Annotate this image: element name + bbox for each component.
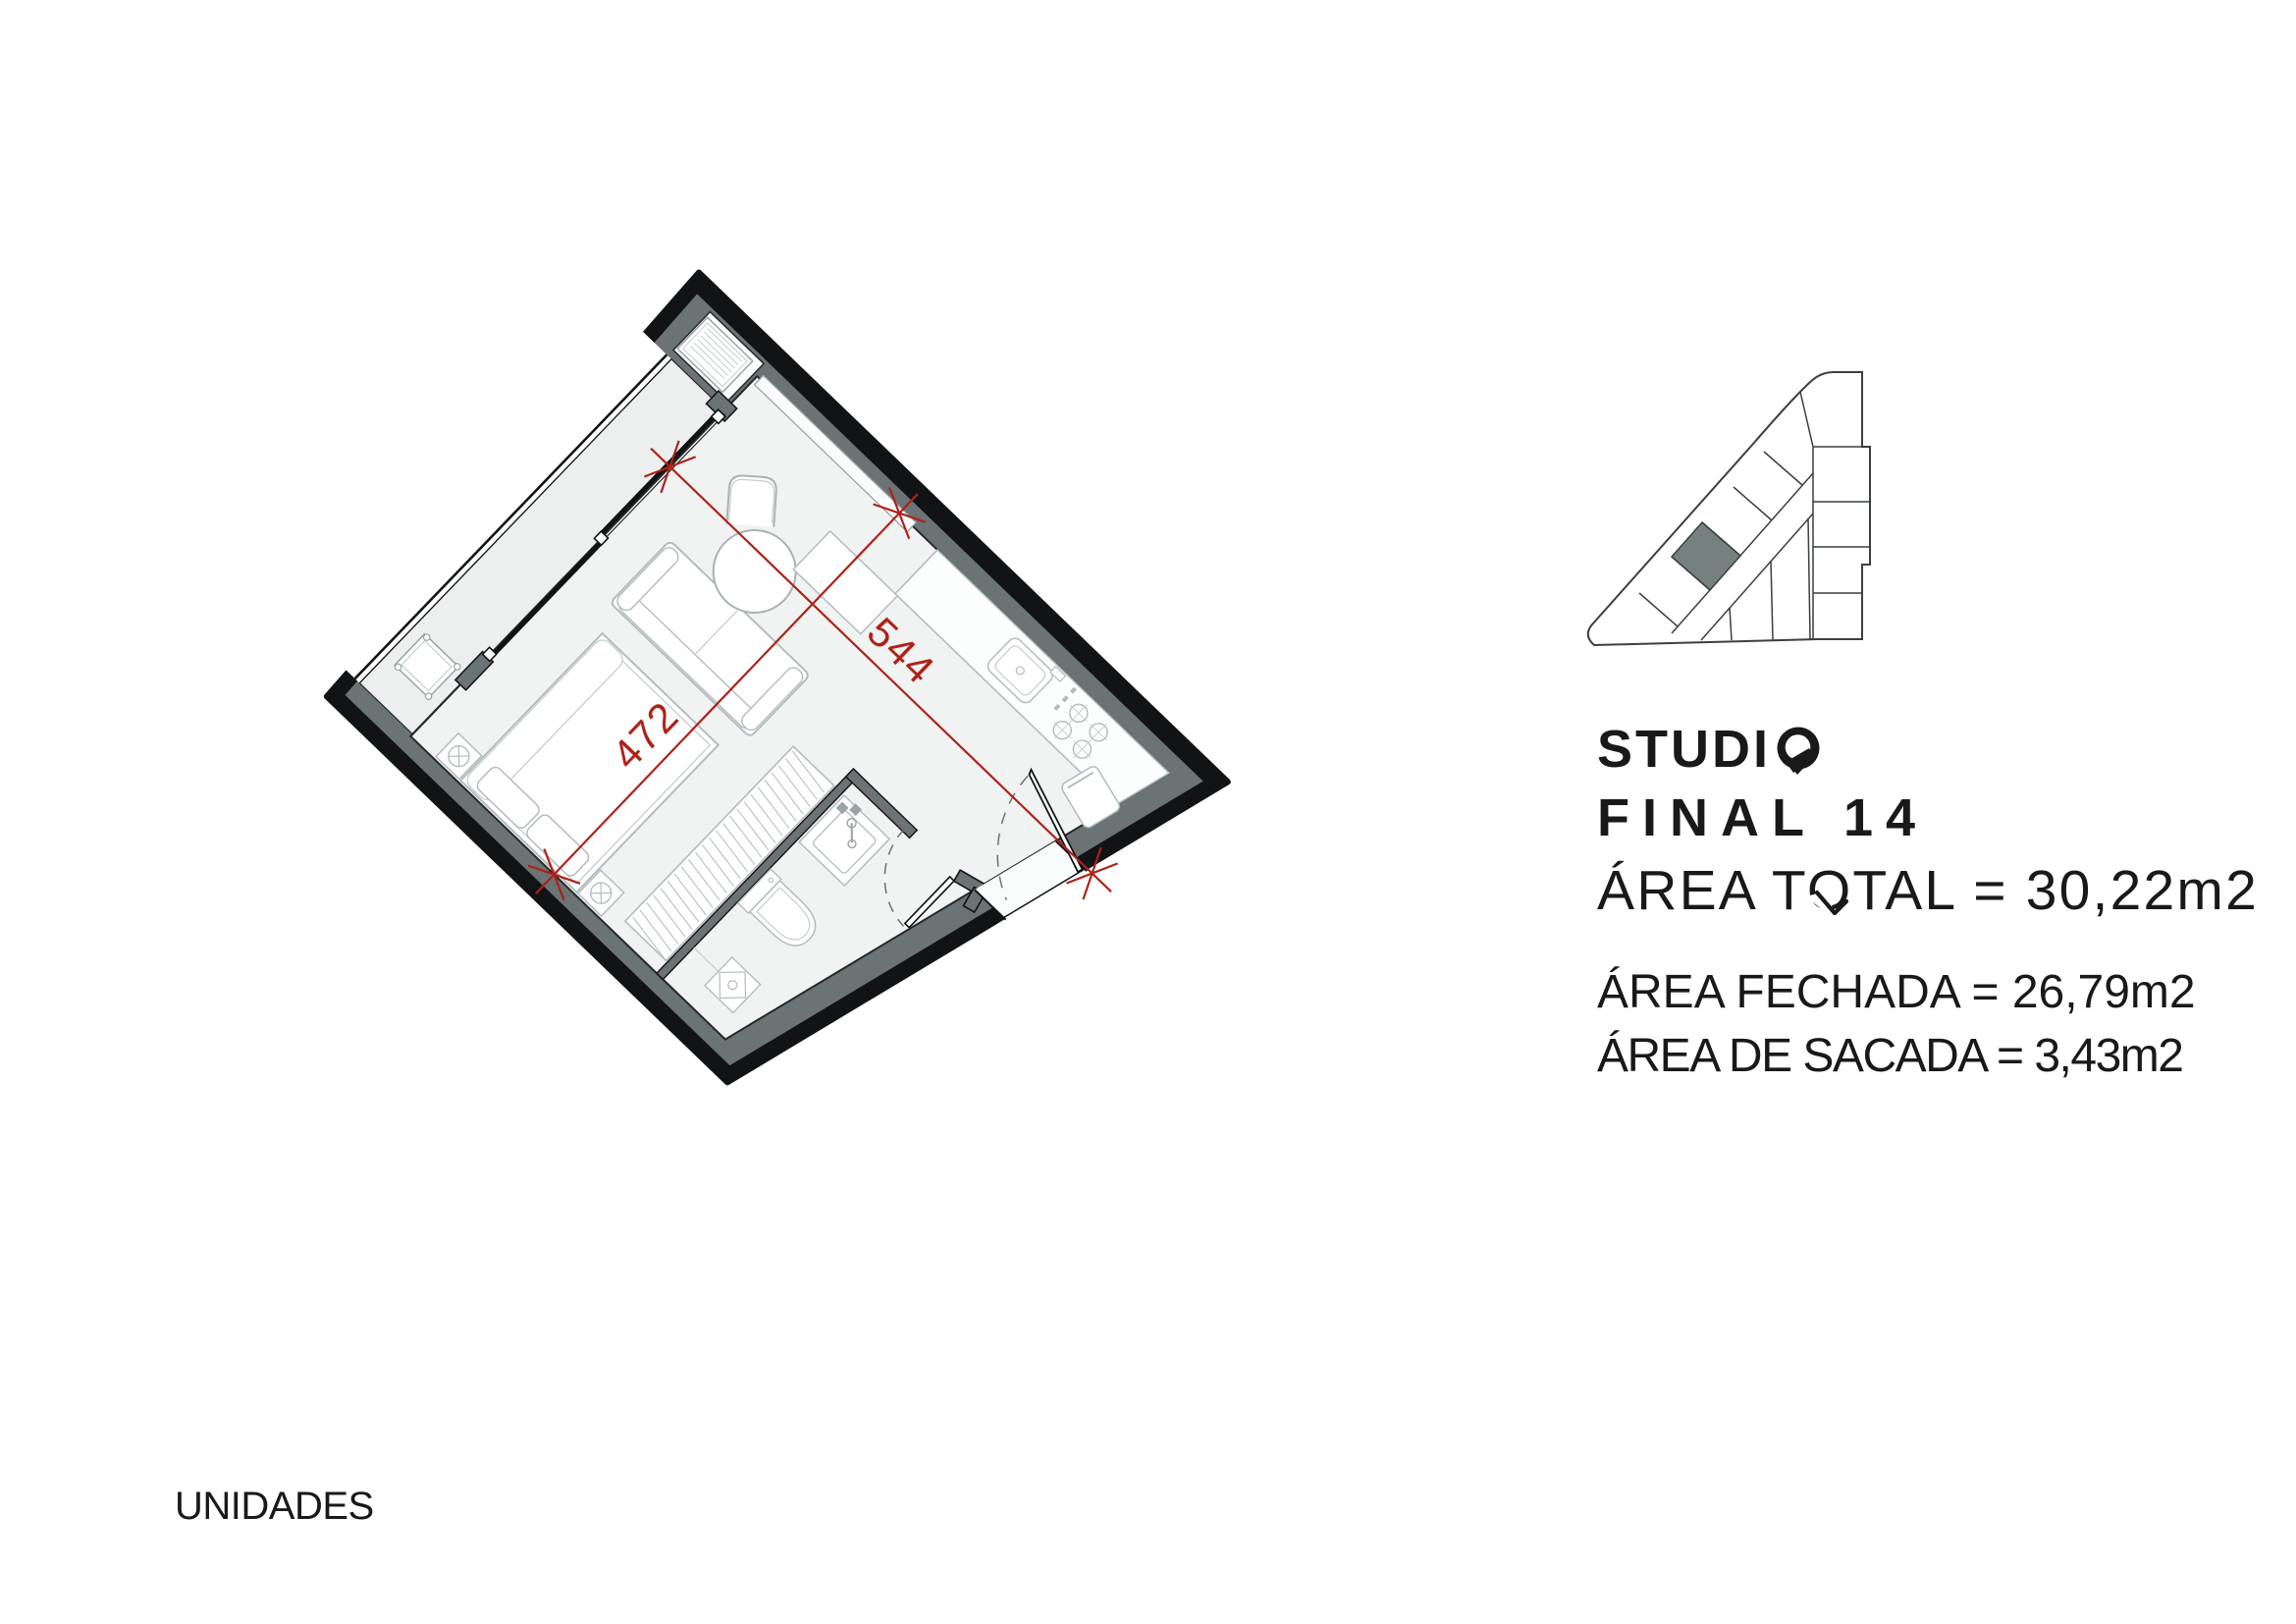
- svg-text:ÁREA TOTAL = 30,22m2: ÁREA TOTAL = 30,22m2: [1597, 859, 2259, 922]
- svg-text:ÁREA FECHADA = 26,79m2: ÁREA FECHADA = 26,79m2: [1597, 966, 2196, 1018]
- svg-text:UNIDADES: UNIDADES: [175, 1485, 374, 1528]
- svg-text:ÁREA DE SACADA = 3,43m2: ÁREA DE SACADA = 3,43m2: [1597, 1030, 2182, 1082]
- svg-text:FINAL 14: FINAL 14: [1597, 788, 1928, 847]
- svg-text:STUDI: STUDI: [1597, 720, 1771, 779]
